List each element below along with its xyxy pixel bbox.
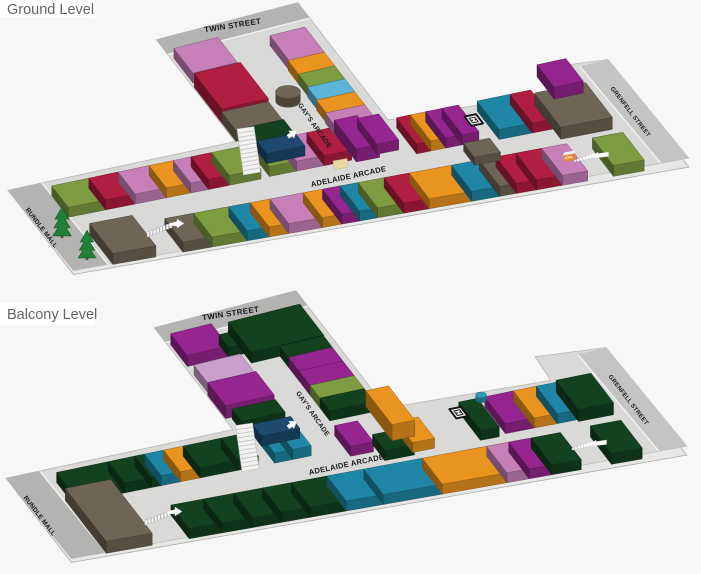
svg-text:Balcony Level: Balcony Level (7, 307, 97, 323)
svg-text:Ground Level: Ground Level (7, 2, 94, 18)
